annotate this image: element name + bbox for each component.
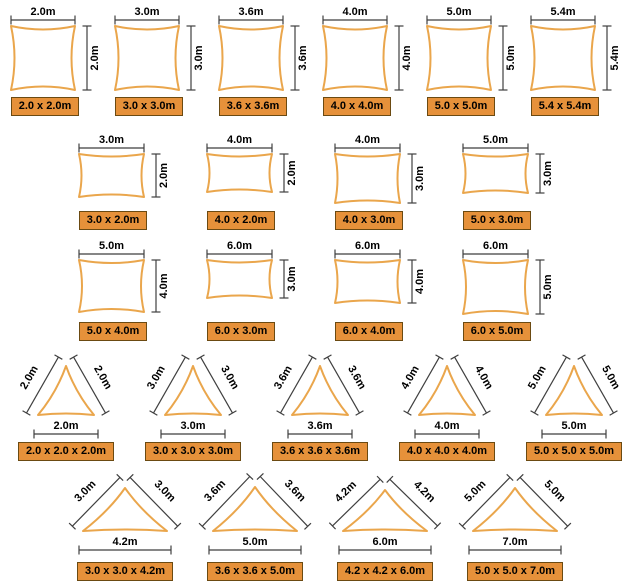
sail-diagram: 3.0m3.0m	[111, 2, 217, 93]
sail-diagram: 5.0m3.0m	[459, 130, 566, 206]
sail-item: 2.0m2.0m2.0 x 2.0m	[8, 2, 112, 116]
sail-item: 5.4m5.4m5.4 x 5.4m	[528, 2, 632, 116]
dimension-tick	[436, 355, 444, 359]
dimension-tick	[578, 355, 586, 359]
dimension-tick	[197, 355, 205, 359]
row-tri-wide: 3.0m3.0m4.2m3.0 x 3.0 x 4.2m3.6m3.6m5.0m…	[0, 469, 640, 581]
height-dimension-label: 5.0m	[542, 274, 554, 299]
base-dimension-label: 7.0m	[502, 536, 527, 548]
base-dimension-label: 5.0m	[242, 536, 267, 548]
sail-item: 5.0m5.0m5.0m5.0 x 5.0 x 5.0m	[511, 347, 638, 461]
size-label-box: 5.0 x 5.0 x 5.0m	[526, 442, 622, 461]
left-side-dimension-label: 3.0m	[72, 478, 98, 504]
size-label-box: 5.0 x 4.0m	[79, 322, 148, 341]
base-dimension-label: 3.0m	[180, 420, 205, 432]
base-dimension-label: 4.2m	[112, 536, 137, 548]
dimension-tick	[55, 355, 63, 359]
sail-shape	[83, 488, 167, 531]
right-side-dimension-label: 5.0m	[599, 364, 622, 392]
sail-shape	[11, 26, 75, 90]
height-dimension-label: 4.0m	[401, 45, 413, 70]
left-side-dimension-label: 5.0m	[526, 364, 549, 392]
sail-diagram: 5.4m5.4m	[527, 2, 633, 93]
base-dimension-label: 6.0m	[372, 536, 397, 548]
dimension-tick	[23, 411, 31, 415]
sail-item: 6.0m4.0m6.0 x 4.0m	[320, 236, 448, 341]
sail-shape	[207, 154, 272, 192]
width-dimension-label: 4.0m	[342, 6, 367, 18]
width-dimension-label: 3.0m	[98, 134, 123, 146]
height-dimension-label: 3.0m	[542, 161, 554, 186]
size-label-box: 6.0 x 4.0m	[335, 322, 404, 341]
sail-shape	[427, 26, 491, 90]
sail-diagram: 6.0m3.0m	[203, 236, 310, 317]
sail-item: 3.6m3.6m3.6m3.6 x 3.6 x 3.6m	[257, 347, 384, 461]
sail-diagram: 2.0m2.0m2.0m	[4, 347, 128, 440]
right-side-dimension-label: 5.0m	[542, 478, 568, 504]
sail-item: 6.0m3.0m6.0 x 3.0m	[192, 236, 320, 341]
sail-shape	[463, 154, 528, 193]
shade-sail-size-chart: 2.0m2.0m2.0 x 2.0m3.0m3.0m3.0 x 3.0m3.6m…	[0, 0, 640, 585]
sail-diagram: 3.0m3.0m3.0m	[131, 347, 255, 440]
sail-item: 4.0m4.0m4.0 x 4.0m	[320, 2, 424, 116]
sail-diagram: 5.0m5.0m5.0m	[512, 347, 636, 440]
right-side-dimension-label: 3.0m	[152, 478, 178, 504]
sail-shape	[323, 26, 387, 90]
width-dimension-label: 5.0m	[98, 240, 123, 252]
sail-item: 4.0m2.0m4.0 x 2.0m	[192, 130, 320, 230]
sail-diagram: 3.0m2.0m	[75, 130, 182, 206]
dimension-tick	[610, 411, 618, 415]
sail-shape	[115, 26, 179, 90]
sail-shape	[79, 260, 144, 312]
right-side-dimension-label: 3.6m	[345, 364, 368, 392]
sail-diagram: 6.0m4.0m	[331, 236, 438, 317]
right-side-dimension-label: 4.2m	[411, 479, 437, 505]
sail-item: 4.2m4.2m6.0m4.2 x 4.2 x 6.0m	[320, 469, 450, 581]
width-dimension-label: 5.0m	[446, 6, 471, 18]
sail-diagram: 3.0m3.0m4.2m	[55, 469, 195, 556]
sail-diagram: 5.0m5.0m	[423, 2, 529, 93]
height-dimension-label: 5.0m	[505, 45, 517, 70]
height-dimension-label: 2.0m	[158, 163, 170, 188]
base-dimension-label: 5.0m	[561, 420, 586, 432]
dimension-tick	[324, 355, 332, 359]
dimension-tick	[563, 355, 571, 359]
dimension-tick	[404, 411, 412, 415]
sail-diagram: 4.2m4.2m6.0m	[315, 469, 455, 556]
sail-diagram: 4.0m4.0m4.0m	[385, 347, 509, 440]
size-label-box: 3.0 x 3.0m	[115, 97, 184, 116]
sail-shape	[38, 366, 94, 415]
sail-shape	[213, 487, 297, 531]
width-dimension-label: 6.0m	[354, 240, 379, 252]
left-side-dimension-label: 2.0m	[18, 364, 41, 392]
left-side-dimension-label: 4.2m	[333, 479, 359, 505]
size-label-box: 3.0 x 3.0 x 3.0m	[145, 442, 241, 461]
right-side-dimension-label: 4.0m	[472, 364, 495, 392]
sail-diagram: 5.0m4.0m	[75, 236, 182, 317]
size-label-box: 3.6 x 3.6 x 5.0m	[207, 562, 303, 581]
size-label-box: 2.0 x 2.0m	[11, 97, 80, 116]
size-label-box: 6.0 x 3.0m	[207, 322, 276, 341]
height-dimension-label: 2.0m	[286, 160, 298, 185]
left-side-dimension-label: 3.0m	[145, 364, 168, 392]
size-label-box: 6.0 x 5.0m	[463, 322, 532, 341]
dimension-tick	[182, 355, 190, 359]
size-label-box: 5.0 x 5.0m	[427, 97, 496, 116]
size-label-box: 5.0 x 3.0m	[463, 211, 532, 230]
width-dimension-label: 6.0m	[226, 240, 251, 252]
sail-shape	[531, 26, 595, 90]
dimension-tick	[356, 411, 364, 415]
right-side-dimension-label: 2.0m	[91, 364, 114, 392]
size-label-box: 4.0 x 4.0 x 4.0m	[399, 442, 495, 461]
sail-shape	[165, 366, 221, 415]
sail-diagram: 2.0m2.0m	[7, 2, 113, 93]
size-label-box: 4.0 x 3.0m	[335, 211, 404, 230]
sail-shape	[292, 366, 348, 415]
height-dimension-label: 3.0m	[286, 266, 298, 291]
dimension-tick	[229, 411, 237, 415]
base-dimension-label: 2.0m	[53, 420, 78, 432]
size-label-box: 3.0 x 2.0m	[79, 211, 148, 230]
sail-diagram: 4.0m4.0m	[319, 2, 425, 93]
dimension-tick	[70, 355, 78, 359]
sail-shape	[546, 366, 602, 415]
sail-item: 5.0m5.0m7.0m5.0 x 5.0 x 7.0m	[450, 469, 580, 581]
sail-diagram: 4.0m2.0m	[203, 130, 310, 206]
row-rects-b: 5.0m4.0m5.0 x 4.0m6.0m3.0m6.0 x 3.0m6.0m…	[0, 236, 640, 341]
sail-item: 4.0m3.0m4.0 x 3.0m	[320, 130, 448, 230]
width-dimension-label: 4.0m	[354, 134, 379, 146]
sail-shape	[219, 26, 283, 90]
base-dimension-label: 3.6m	[307, 420, 332, 432]
width-dimension-label: 3.0m	[134, 6, 159, 18]
height-dimension-label: 4.0m	[158, 273, 170, 298]
dimension-tick	[309, 355, 317, 359]
dimension-tick	[483, 411, 491, 415]
width-dimension-label: 2.0m	[30, 6, 55, 18]
left-side-dimension-label: 3.6m	[202, 478, 228, 505]
sail-item: 3.0m3.0m4.2m3.0 x 3.0 x 4.2m	[60, 469, 190, 581]
left-side-dimension-label: 5.0m	[462, 478, 488, 504]
size-label-box: 5.0 x 5.0 x 7.0m	[467, 562, 563, 581]
size-label-box: 4.2 x 4.2 x 6.0m	[337, 562, 433, 581]
sail-shape	[207, 260, 272, 298]
width-dimension-label: 5.4m	[550, 6, 575, 18]
row-squares: 2.0m2.0m2.0 x 2.0m3.0m3.0m3.0 x 3.0m3.6m…	[0, 2, 640, 116]
height-dimension-label: 4.0m	[414, 269, 426, 294]
sail-item: 3.0m2.0m3.0 x 2.0m	[64, 130, 192, 230]
dimension-tick	[277, 411, 285, 415]
sail-item: 3.6m3.6m5.0m3.6 x 3.6 x 5.0m	[190, 469, 320, 581]
size-label-box: 3.6 x 3.6m	[219, 97, 288, 116]
sail-item: 6.0m5.0m6.0 x 5.0m	[448, 236, 576, 341]
width-dimension-label: 4.0m	[226, 134, 251, 146]
sail-item: 5.0m5.0m5.0 x 5.0m	[424, 2, 528, 116]
right-side-dimension-label: 3.0m	[218, 364, 241, 392]
size-label-box: 4.0 x 4.0m	[323, 97, 392, 116]
row-rects-a: 3.0m2.0m3.0 x 2.0m4.0m2.0m4.0 x 2.0m4.0m…	[0, 130, 640, 230]
sail-shape	[335, 154, 400, 203]
sail-item: 5.0m3.0m5.0 x 3.0m	[448, 130, 576, 230]
dimension-tick	[102, 411, 110, 415]
sail-diagram: 3.6m3.6m5.0m	[185, 469, 325, 556]
sail-item: 3.0m3.0m3.0m3.0 x 3.0 x 3.0m	[130, 347, 257, 461]
base-dimension-label: 4.0m	[434, 420, 459, 432]
dimension-tick	[531, 411, 539, 415]
dimension-tick	[451, 355, 459, 359]
sail-shape	[343, 490, 427, 531]
sail-shape	[419, 366, 475, 415]
height-dimension-label: 3.6m	[297, 45, 309, 70]
dimension-tick	[150, 411, 158, 415]
size-label-box: 3.6 x 3.6 x 3.6m	[272, 442, 368, 461]
sail-diagram: 5.0m5.0m7.0m	[445, 469, 585, 556]
sail-item: 4.0m4.0m4.0m4.0 x 4.0 x 4.0m	[384, 347, 511, 461]
width-dimension-label: 3.6m	[238, 6, 263, 18]
sail-shape	[463, 260, 528, 314]
size-label-box: 2.0 x 2.0 x 2.0m	[18, 442, 114, 461]
left-side-dimension-label: 4.0m	[399, 364, 422, 392]
sail-item: 3.0m3.0m3.0 x 3.0m	[112, 2, 216, 116]
left-side-dimension-label: 3.6m	[272, 364, 295, 392]
size-label-box: 5.4 x 5.4m	[531, 97, 600, 116]
row-tri-equal: 2.0m2.0m2.0m2.0 x 2.0 x 2.0m3.0m3.0m3.0m…	[0, 347, 640, 461]
size-label-box: 4.0 x 2.0m	[207, 211, 276, 230]
sail-shape	[473, 488, 557, 531]
height-dimension-label: 3.0m	[193, 45, 205, 70]
height-dimension-label: 5.4m	[609, 45, 621, 70]
sail-item: 5.0m4.0m5.0 x 4.0m	[64, 236, 192, 341]
width-dimension-label: 6.0m	[482, 240, 507, 252]
sail-diagram: 6.0m5.0m	[459, 236, 566, 317]
height-dimension-label: 2.0m	[89, 45, 101, 70]
size-label-box: 3.0 x 3.0 x 4.2m	[77, 562, 173, 581]
sail-shape	[335, 260, 400, 303]
height-dimension-label: 3.0m	[414, 166, 426, 191]
sail-diagram: 3.6m3.6m3.6m	[258, 347, 382, 440]
sail-diagram: 4.0m3.0m	[331, 130, 438, 206]
sail-shape	[79, 154, 144, 197]
width-dimension-label: 5.0m	[482, 134, 507, 146]
sail-diagram: 3.6m3.6m	[215, 2, 321, 93]
right-side-dimension-label: 3.6m	[282, 478, 308, 505]
sail-item: 2.0m2.0m2.0m2.0 x 2.0 x 2.0m	[3, 347, 130, 461]
sail-item: 3.6m3.6m3.6 x 3.6m	[216, 2, 320, 116]
